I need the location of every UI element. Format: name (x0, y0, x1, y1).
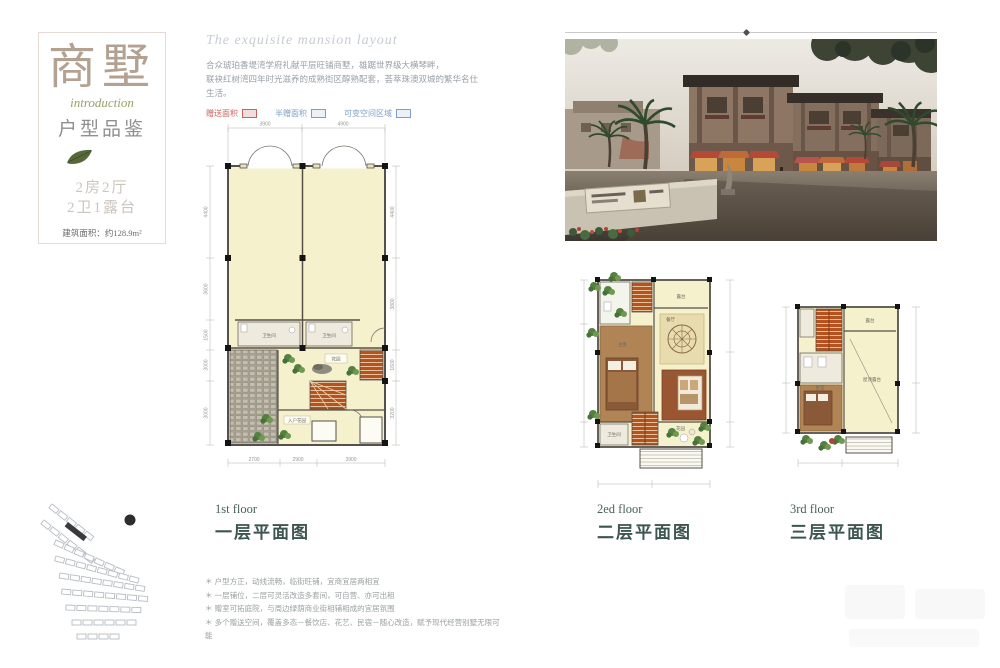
svg-text:3900: 3900 (345, 457, 356, 463)
note-line: ＊ 多个赠送空间，覆盖多态－餐饮店、花艺、民宿－随心改造，赋予现代经营别墅无限可… (205, 616, 505, 643)
svg-text:3200: 3200 (390, 407, 396, 418)
floor-label-1: 1st floor 一层平面图 (215, 502, 310, 543)
svg-text:露台: 露台 (677, 293, 686, 300)
title-banner: 商墅 introduction 户型品鉴 2房2厅 2卫1露台 建筑面积：约12… (38, 32, 166, 244)
location-marker-dot (125, 515, 136, 526)
svg-text:3800: 3800 (390, 298, 396, 309)
legend-swatch-blue (396, 109, 411, 118)
page-title: 商墅 (39, 43, 165, 93)
svg-text:花园: 花园 (676, 425, 685, 432)
unit-spec: 2房2厅 2卫1露台 (39, 178, 165, 218)
watermark (845, 585, 990, 655)
legend-swatch-red (242, 109, 257, 118)
svg-text:2900: 2900 (292, 457, 303, 463)
svg-text:入户花园: 入户花园 (288, 417, 306, 424)
note-line: ＊ 赠室可拓庭院，与周边绿荫商业街相辅相成的宜居氛围 (205, 602, 505, 616)
brochure-page: 商墅 introduction 户型品鉴 2房2厅 2卫1露台 建筑面积：约12… (0, 0, 1000, 668)
svg-text:卫生间: 卫生间 (607, 431, 621, 438)
title-subtitle: 户型品鉴 (39, 114, 165, 141)
svg-text:主卧: 主卧 (618, 341, 627, 348)
intro-block: The exquisite mansion layout 合众琥珀香堤湾学府礼献… (206, 33, 486, 119)
floor-label-3: 3rd floor 三层平面图 (790, 502, 885, 543)
intro-line-2: 联袂红树湾四年时光滋养的成熟街区醇熟配套，荟萃珠澳双城的繁华名仕生活。 (206, 72, 486, 100)
svg-text:卫生间: 卫生间 (322, 332, 336, 339)
intro-description: 合众琥珀香堤湾学府礼献平层旺铺商墅，雄踞世界级大横琴畔， 联袂红树湾四年时光滋养… (206, 58, 486, 100)
first-floor-plan: 3900 4900 2700 2900 3900 4400 3600 1500 … (200, 118, 405, 480)
svg-text:4400: 4400 (390, 206, 396, 217)
svg-text:3000: 3000 (204, 359, 210, 370)
svg-text:1500: 1500 (204, 329, 210, 340)
floor-label-en: 3rd floor (790, 502, 885, 517)
floor-label-en: 1st floor (215, 502, 310, 517)
svg-text:3600: 3600 (204, 283, 210, 294)
leaf-icon (65, 148, 95, 166)
feature-notes: ＊ 户型方正，动线流畅，临街旺铺，宜商宜居两相宜 ＊ 一层铺位，二层可灵活改造多… (205, 575, 505, 643)
note-line: ＊ 一层铺位，二层可灵活改造多套间，可自营、亦可出租 (205, 589, 505, 603)
divider-line (565, 32, 937, 33)
svg-text:3000: 3000 (204, 407, 210, 418)
second-floor-plan: 露台 餐厅 客厅 主卧 卫生间 花园 (580, 262, 755, 494)
floor-label-cn: 二层平面图 (597, 518, 692, 543)
section-divider (565, 30, 937, 36)
svg-text:卧室: 卧室 (816, 384, 825, 391)
svg-text:露台: 露台 (866, 317, 875, 324)
title-script-caption: introduction (39, 95, 165, 111)
legend-swatch-blue (311, 109, 326, 118)
floor-label-2: 2ed floor 二层平面图 (597, 502, 692, 543)
built-area: 建筑面积：约128.9m² (39, 227, 165, 239)
floor-label-cn: 一层平面图 (215, 518, 310, 543)
hero-rendering-photo (565, 39, 937, 241)
note-line: ＊ 户型方正，动线流畅，临街旺铺，宜商宜居两相宜 (205, 575, 505, 589)
svg-text:客厅: 客厅 (666, 372, 675, 379)
svg-text:餐厅: 餐厅 (666, 316, 675, 323)
intro-line-1: 合众琥珀香堤湾学府礼献平层旺铺商墅，雄踞世界级大横琴畔， (206, 58, 486, 72)
svg-text:屋顶露台: 屋顶露台 (863, 376, 881, 383)
svg-text:卫生间: 卫生间 (262, 332, 276, 339)
intro-script-heading: The exquisite mansion layout (206, 33, 486, 49)
svg-text:1600: 1600 (390, 359, 396, 370)
svg-text:3900: 3900 (259, 122, 270, 128)
third-floor-plan: 露台 卧室 屋顶露台 (780, 295, 940, 480)
svg-text:4900: 4900 (337, 122, 348, 128)
floor-label-cn: 三层平面图 (790, 518, 885, 543)
svg-text:花园: 花园 (332, 356, 341, 363)
spec-baths: 2卫1露台 (39, 198, 165, 218)
divider-diamond-icon (743, 29, 750, 36)
site-plan-diagram (22, 488, 182, 658)
spec-rooms: 2房2厅 (39, 178, 165, 198)
svg-text:2700: 2700 (248, 457, 259, 463)
svg-text:4400: 4400 (204, 206, 210, 217)
floor-label-en: 2ed floor (597, 502, 692, 517)
